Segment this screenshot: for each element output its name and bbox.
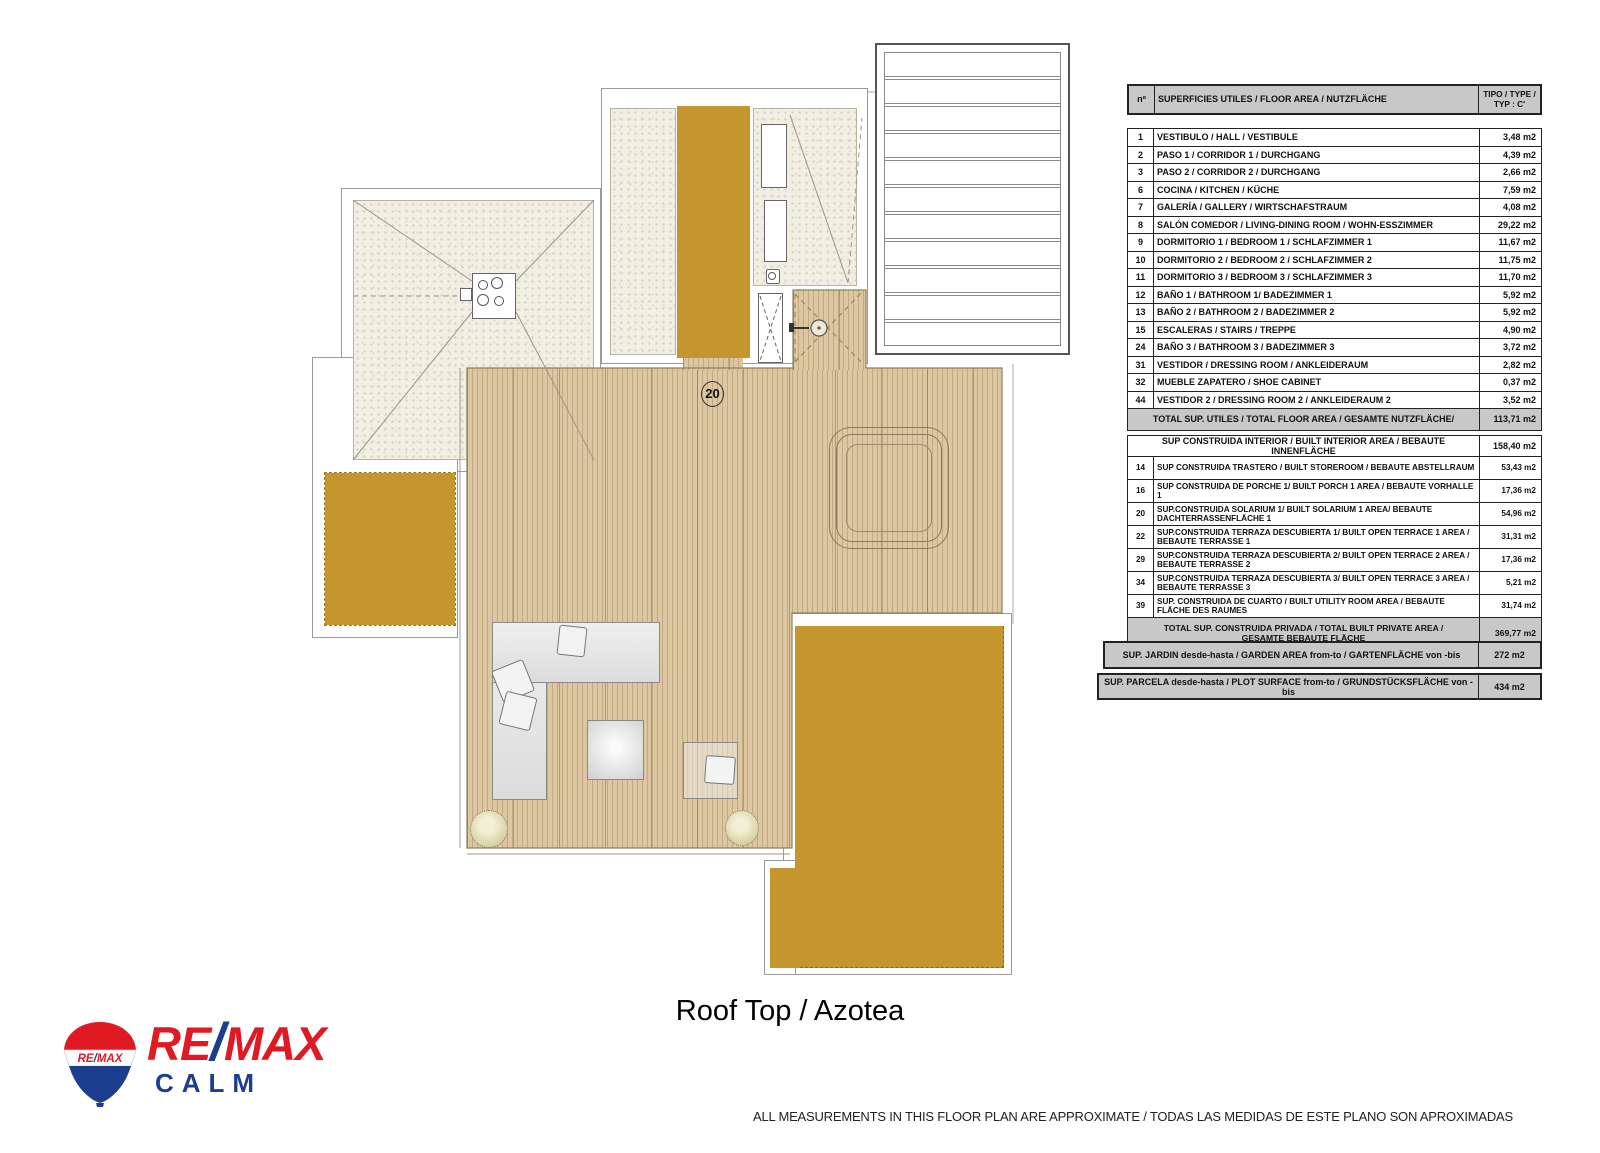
row-number: 7 [1128,199,1154,216]
built-interior-row: SUP CONSTRUIDA INTERIOR / BUILT INTERIOR… [1127,435,1542,457]
row-area: 54,96 m2 [1479,503,1541,525]
row-area: 0,37 m2 [1479,374,1541,391]
row-area: 29,22 m2 [1479,217,1541,234]
row-label: COCINA / KITCHEN / KÜCHE [1154,182,1479,199]
row-label: SUP CONSTRUIDA TRASTERO / BUILT STOREROO… [1154,457,1479,479]
header-label: SUPERFICIES UTILES / FLOOR AREA / NUTZFL… [1155,86,1478,113]
table-row: 24BAÑO 3 / BATHROOM 3 / BADEZIMMER 33,72… [1127,339,1542,357]
table-row: 44VESTIDOR 2 / DRESSING ROOM 2 / ANKLEID… [1127,392,1542,410]
row-area: 4,08 m2 [1479,199,1541,216]
row-label: BAÑO 3 / BATHROOM 3 / BADEZIMMER 3 [1154,339,1479,356]
table-row: 10DORMITORIO 2 / BEDROOM 2 / SCHLAFZIMME… [1127,252,1542,270]
row-label: SUP.CONSTRUIDA TERRAZA DESCUBIERTA 3/ BU… [1154,572,1479,594]
row-area: 53,43 m2 [1479,457,1541,479]
garden-area-value: 272 m2 [1478,643,1540,667]
office-name: CALM [155,1068,262,1099]
wordmark-max: MAX [224,1017,325,1070]
page-title: Roof Top / Azotea [560,995,1020,1028]
deck-outline [467,290,1002,848]
row-area: 2,66 m2 [1479,164,1541,181]
table-row: 15ESCALERAS / STAIRS / TREPPE4,90 m2 [1127,322,1542,340]
garden-area-label: SUP. JARDIN desde-hasta / GARDEN AREA fr… [1105,643,1478,667]
table-row: 13BAÑO 2 / BATHROOM 2 / BADEZIMMER 25,92… [1127,304,1542,322]
row-label: MUEBLE ZAPATERO / SHOE CABINET [1154,374,1479,391]
floor-plan-page: 20 [0,0,1600,1153]
table-row: 22SUP.CONSTRUIDA TERRAZA DESCUBIERTA 1/ … [1127,526,1542,549]
row-area: 4,39 m2 [1479,147,1541,164]
table-row: 16SUP CONSTRUIDA DE PORCHE 1/ BUILT PORC… [1127,480,1542,503]
row-number: 39 [1128,595,1154,617]
table-row: 2PASO 1 / CORRIDOR 1 / DURCHGANG4,39 m2 [1127,147,1542,165]
row-area: 11,70 m2 [1479,269,1541,286]
total-floor-area-value: 113,71 m2 [1479,409,1541,430]
row-number: 15 [1128,322,1154,339]
garden-area-row: SUP. JARDIN desde-hasta / GARDEN AREA fr… [1103,641,1542,669]
table-row: 34SUP.CONSTRUIDA TERRAZA DESCUBIERTA 3/ … [1127,572,1542,595]
row-label: VESTIDOR / DRESSING ROOM / ANKLEIDERAUM [1154,357,1479,374]
header-type: TIPO / TYPE / TYP : C' [1478,86,1540,113]
row-number: 9 [1128,234,1154,251]
table-header: nº SUPERFICIES UTILES / FLOOR AREA / NUT… [1127,84,1542,115]
row-label: PASO 1 / CORRIDOR 1 / DURCHGANG [1154,147,1479,164]
total-floor-area-label: TOTAL SUP. UTILES / TOTAL FLOOR AREA / G… [1128,409,1479,430]
row-number: 13 [1128,304,1154,321]
row-number: 2 [1128,147,1154,164]
row-number: 14 [1128,457,1154,479]
row-label: SUP. CONSTRUIDA DE CUARTO / BUILT UTILIT… [1154,595,1479,617]
header-number: nº [1129,86,1155,113]
row-number: 20 [1128,503,1154,525]
table-row: 9DORMITORIO 1 / BEDROOM 1 / SCHLAFZIMMER… [1127,234,1542,252]
table-row: 20SUP.CONSTRUIDA SOLARIUM 1/ BUILT SOLAR… [1127,503,1542,526]
areas-table: nº SUPERFICIES UTILES / FLOOR AREA / NUT… [1127,84,1542,651]
plot-boundary-line [868,92,1013,624]
row-area: 11,67 m2 [1479,234,1541,251]
wordmark-slash: / [210,1013,224,1072]
row-label: ESCALERAS / STAIRS / TREPPE [1154,322,1479,339]
skylight-burner-circles [478,273,776,306]
row-area: 31,31 m2 [1479,526,1541,548]
table-row: 29SUP.CONSTRUIDA TERRAZA DESCUBIERTA 2/ … [1127,549,1542,572]
table-row: 12BAÑO 1 / BATHROOM 1/ BADEZIMMER 15,92 … [1127,287,1542,305]
row-area: 3,72 m2 [1479,339,1541,356]
table-row: 14SUP CONSTRUIDA TRASTERO / BUILT STORER… [1127,457,1542,480]
row-area: 2,82 m2 [1479,357,1541,374]
row-area: 5,21 m2 [1479,572,1541,594]
row-label: SUP.CONSTRUIDA TERRAZA DESCUBIERTA 1/ BU… [1154,526,1479,548]
disclaimer-text: ALL MEASUREMENTS IN THIS FLOOR PLAN ARE … [753,1109,1513,1124]
built-interior-value: 158,40 m2 [1479,436,1541,456]
row-label: SUP.CONSTRUIDA TERRAZA DESCUBIERTA 2/ BU… [1154,549,1479,571]
row-number: 8 [1128,217,1154,234]
row-number: 6 [1128,182,1154,199]
row-number: 24 [1128,339,1154,356]
skylight-hatch-x [760,296,781,361]
row-number: 31 [1128,357,1154,374]
table-row: 11DORMITORIO 3 / BEDROOM 3 / SCHLAFZIMME… [1127,269,1542,287]
row-number: 12 [1128,287,1154,304]
wordmark-re: RE [147,1017,210,1070]
table-row: 7GALERÍA / GALLERY / WIRTSCHAFSTRAUM4,08… [1127,199,1542,217]
row-label: DORMITORIO 1 / BEDROOM 1 / SCHLAFZIMMER … [1154,234,1479,251]
plot-surface-value: 434 m2 [1478,675,1540,698]
row-area: 3,52 m2 [1479,392,1541,409]
svg-text:RE/MAX: RE/MAX [78,1053,124,1065]
row-label: VESTIBULO / HALL / VESTIBULE [1154,129,1479,146]
row-area: 7,59 m2 [1479,182,1541,199]
row-number: 11 [1128,269,1154,286]
row-area: 11,75 m2 [1479,252,1541,269]
table-row: 39SUP. CONSTRUIDA DE CUARTO / BUILT UTIL… [1127,595,1542,618]
table-row: 1VESTIBULO / HALL / VESTIBULE3,48 m2 [1127,129,1542,147]
row-number: 10 [1128,252,1154,269]
row-label: VESTIDOR 2 / DRESSING ROOM 2 / ANKLEIDER… [1154,392,1479,409]
row-number: 34 [1128,572,1154,594]
row-area: 17,36 m2 [1479,549,1541,571]
row-label: SUP.CONSTRUIDA SOLARIUM 1/ BUILT SOLARIU… [1154,503,1479,525]
row-label: DORMITORIO 2 / BEDROOM 2 / SCHLAFZIMMER … [1154,252,1479,269]
row-number: 1 [1128,129,1154,146]
row-number: 3 [1128,164,1154,181]
row-number: 16 [1128,480,1154,502]
table-row: 31VESTIDOR / DRESSING ROOM / ANKLEIDERAU… [1127,357,1542,375]
row-number: 22 [1128,526,1154,548]
row-area: 17,36 m2 [1479,480,1541,502]
row-label: SUP CONSTRUIDA DE PORCHE 1/ BUILT PORCH … [1154,480,1479,502]
table-row: 3PASO 2 / CORRIDOR 2 / DURCHGANG2,66 m2 [1127,164,1542,182]
remax-balloon-icon: RE/MAX [58,1019,142,1107]
room-rows: 1VESTIBULO / HALL / VESTIBULE3,48 m22PAS… [1127,128,1542,409]
built-interior-label: SUP CONSTRUIDA INTERIOR / BUILT INTERIOR… [1128,436,1479,456]
table-row: 8SALÓN COMEDOR / LIVING-DINING ROOM / WO… [1127,217,1542,235]
total-floor-area-row: TOTAL SUP. UTILES / TOTAL FLOOR AREA / G… [1127,409,1542,431]
row-number: 44 [1128,392,1154,409]
table-row: 6COCINA / KITCHEN / KÜCHE7,59 m2 [1127,182,1542,200]
row-number: 32 [1128,374,1154,391]
row-area: 3,48 m2 [1479,129,1541,146]
plot-surface-row: SUP. PARCELA desde-hasta / PLOT SURFACE … [1097,673,1542,700]
row-area: 31,74 m2 [1479,595,1541,617]
row-area: 4,90 m2 [1479,322,1541,339]
right-roof-slope-lines [790,115,862,283]
deck-railing [460,368,790,854]
row-label: PASO 2 / CORRIDOR 2 / DURCHGANG [1154,164,1479,181]
row-number: 29 [1128,549,1154,571]
row-label: GALERÍA / GALLERY / WIRTSCHAFSTRAUM [1154,199,1479,216]
table-row: 32MUEBLE ZAPATERO / SHOE CABINET0,37 m2 [1127,374,1542,392]
row-area: 5,92 m2 [1479,304,1541,321]
hip-roof-lines [353,200,594,460]
row-area: 5,92 m2 [1479,287,1541,304]
plot-surface-label: SUP. PARCELA desde-hasta / PLOT SURFACE … [1099,675,1478,698]
row-label: BAÑO 1 / BATHROOM 1/ BADEZIMMER 1 [1154,287,1479,304]
row-label: DORMITORIO 3 / BEDROOM 3 / SCHLAFZIMMER … [1154,269,1479,286]
row-label: BAÑO 2 / BATHROOM 2 / BADEZIMMER 2 [1154,304,1479,321]
remax-wordmark: RE/MAX [147,1012,325,1073]
row-label: SALÓN COMEDOR / LIVING-DINING ROOM / WOH… [1154,217,1479,234]
built-rows: 14SUP CONSTRUIDA TRASTERO / BUILT STORER… [1127,457,1542,618]
